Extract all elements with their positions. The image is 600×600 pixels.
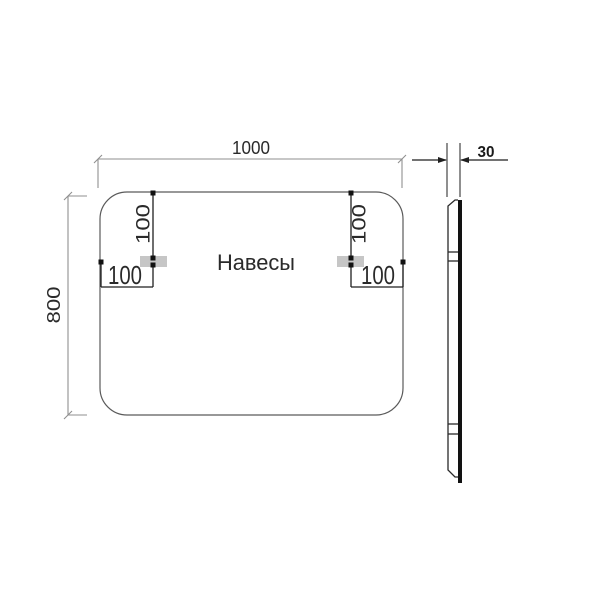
anchor-dot (151, 256, 156, 261)
anchor-dot (151, 263, 156, 268)
anchor-dot (349, 263, 354, 268)
anchor-dot (401, 260, 406, 265)
width-dimension-label: 1000 (232, 138, 270, 158)
arrowhead-left-icon (460, 157, 469, 163)
thickness-dimension-label: 30 (478, 144, 495, 161)
height-dimension-label: 800 (44, 287, 64, 324)
right-bracket-top-offset-label: 100 (350, 204, 371, 244)
anchor-dot (349, 256, 354, 261)
height-dimension: 800 (44, 192, 87, 419)
side-view: 30 (412, 143, 508, 483)
left-bracket-side-offset-label: 100 (108, 260, 142, 290)
thickness-dimension: 30 (412, 143, 508, 197)
anchor-dot (99, 260, 104, 265)
left-bracket-top-offset-label: 100 (134, 204, 155, 244)
profile-bracket-marks (448, 252, 458, 434)
anchor-dot (349, 191, 354, 196)
profile-backing-outline (448, 200, 458, 477)
width-dimension: 1000 (94, 138, 406, 188)
anchor-dot (151, 191, 156, 196)
arrowhead-right-icon (438, 157, 447, 163)
technical-drawing: 1000 800 Навесы 100 (0, 0, 600, 600)
right-bracket-side-offset-label: 100 (361, 260, 395, 290)
hangers-label: Навесы (217, 250, 295, 275)
profile-glass-face (458, 200, 462, 483)
front-view: 1000 800 Навесы 100 (44, 138, 406, 419)
thickness-ext-lines (447, 143, 460, 197)
